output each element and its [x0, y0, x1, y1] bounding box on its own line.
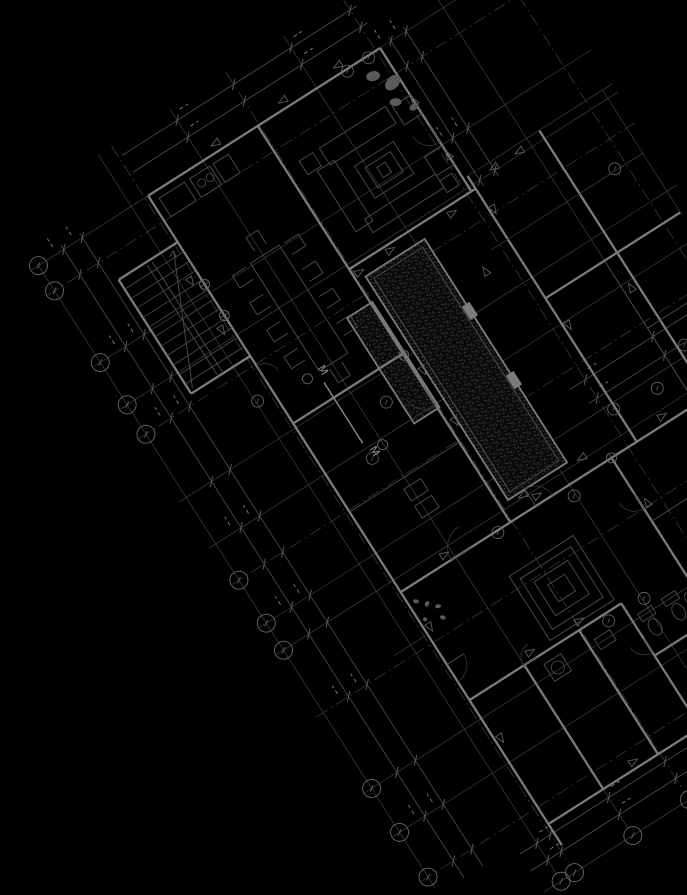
floor-plan: ММ — [0, 0, 687, 895]
